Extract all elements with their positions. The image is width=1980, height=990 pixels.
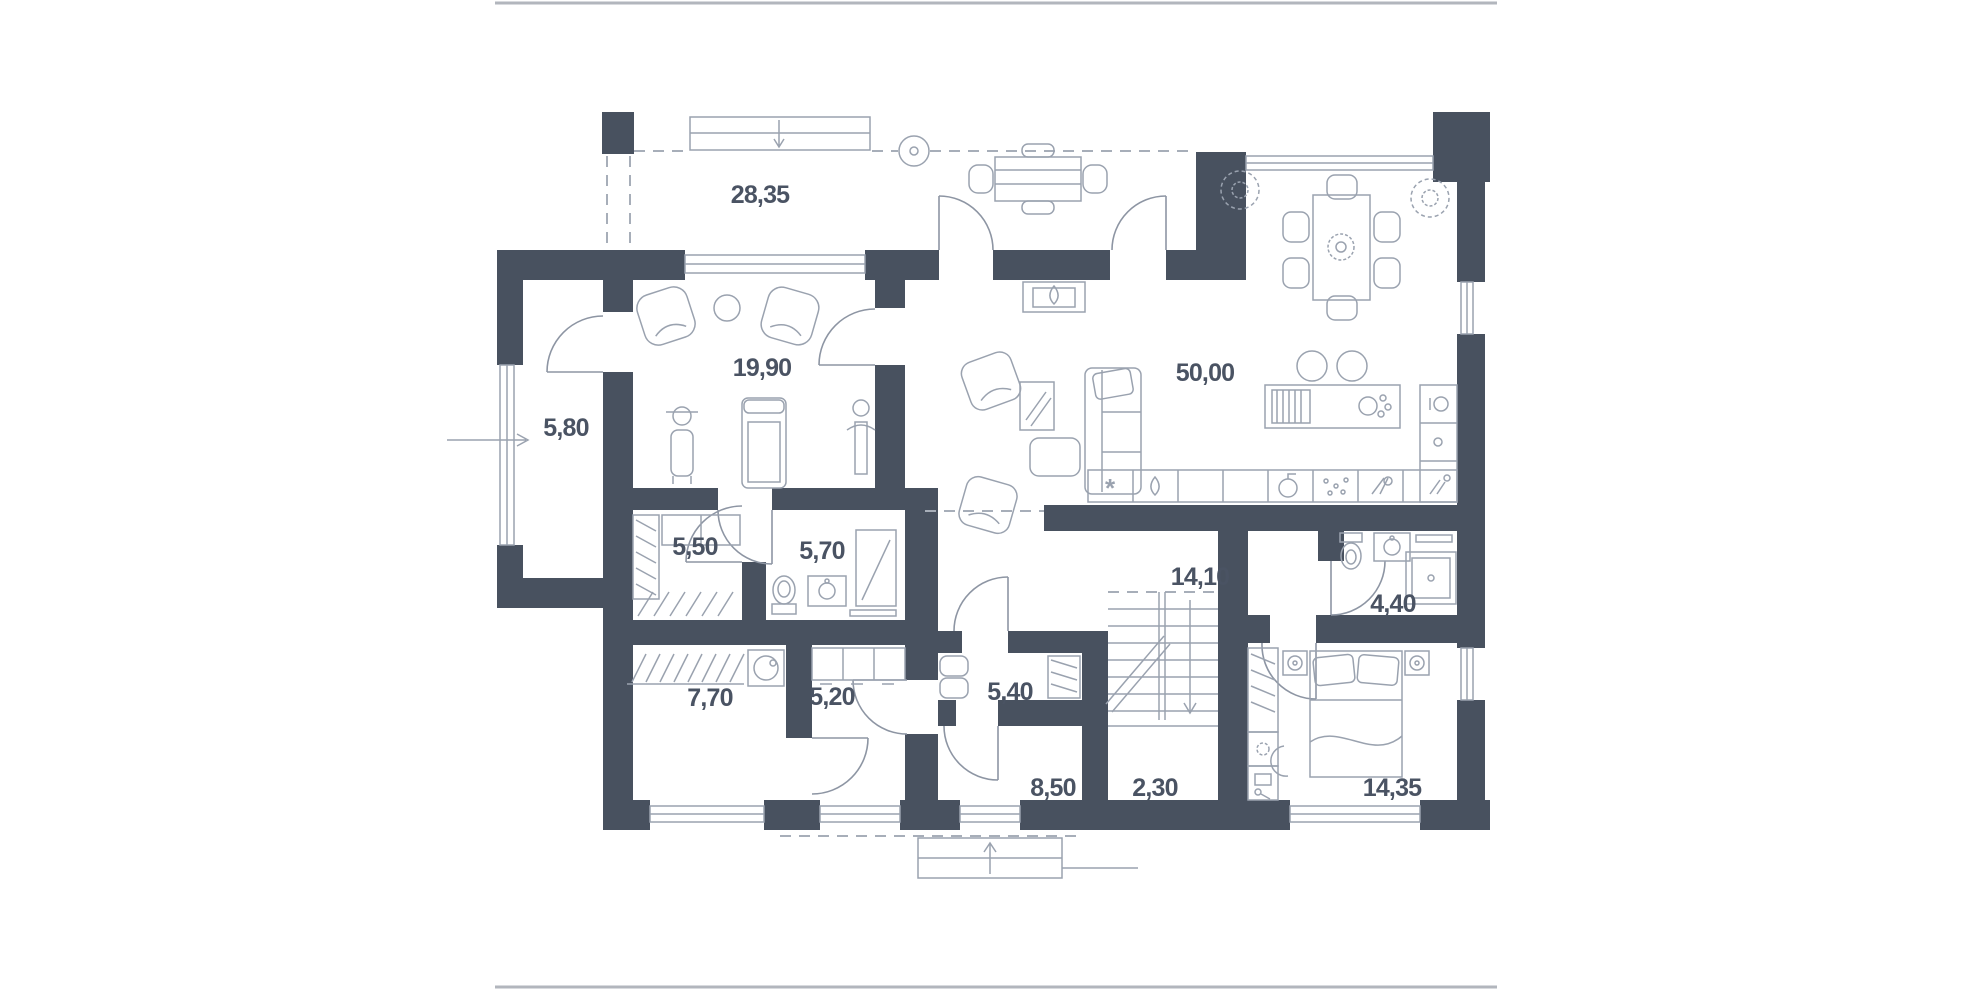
room-label-laundry: 5,20: [809, 683, 854, 711]
door-corridor-hall: [954, 577, 1008, 631]
stairs-direction-arrow: [1184, 600, 1196, 713]
room-label-entry: 8,50: [1030, 774, 1075, 802]
wall-segment: [865, 250, 939, 280]
wall-segment: [1457, 334, 1485, 648]
wall-segment: [1082, 800, 1248, 830]
entry-steps-icon: [918, 838, 1138, 878]
wall-segment: [1420, 800, 1490, 830]
window-porch-west: [500, 365, 514, 545]
washbasin-icon: [808, 576, 846, 606]
door-hall-entry: [944, 726, 998, 780]
room-label-dressing: 5,50: [672, 533, 717, 561]
entrance-door-threshold: [960, 806, 1020, 822]
wall-segment: [603, 620, 938, 645]
wall-segment: [742, 562, 766, 620]
terrace-west-dashed: [607, 156, 630, 250]
door-terrace-right: [1112, 196, 1166, 250]
coffee-table-icon: [1030, 438, 1080, 476]
wall-segment: [1248, 800, 1290, 830]
desk-chair-icon: [1271, 746, 1288, 776]
towel-rail-icon: [850, 610, 896, 616]
wall-segment: [772, 488, 938, 510]
hob-flame-icon: [1151, 477, 1159, 495]
room-label-terrace: 28,35: [731, 181, 790, 209]
wall-segment: [1433, 112, 1490, 182]
armchair-icon: [633, 283, 699, 349]
side-table-icon: [714, 295, 740, 321]
armchair-icon: [758, 284, 822, 348]
wall-segment: [764, 800, 820, 830]
dining-table-icon: [1283, 175, 1400, 320]
planter-bench-icon: [690, 117, 870, 150]
window-gym-north: [685, 255, 865, 273]
door-laundry-storage: [812, 738, 868, 794]
wardrobe-hatch-icon: [627, 654, 744, 684]
wall-segment: [497, 280, 523, 365]
wall-segment: [603, 800, 650, 830]
fireplace-icon: [1023, 282, 1085, 312]
treadmill-icon: [742, 398, 786, 488]
door-hall-laundry: [853, 680, 907, 734]
armchair-icon: [958, 349, 1024, 414]
outdoor-dining-table-icon: [969, 144, 1107, 214]
room-label-corridor: 14,10: [1171, 563, 1230, 591]
plate-glass-icon: [1430, 397, 1448, 411]
wall-segment: [993, 250, 1110, 280]
towel-rail-icon: [1416, 535, 1452, 542]
door-terrace-left: [939, 196, 993, 250]
porch-entry-arrow: [447, 434, 528, 446]
stair-break-line: [1106, 636, 1170, 712]
window-storage-south: [650, 806, 764, 822]
laundry-counter-icon: [812, 648, 905, 684]
wall-segment: [938, 700, 956, 726]
window-laundry-south: [820, 806, 900, 822]
room-label-hall: 5,40: [987, 678, 1032, 706]
armchair-icon: [956, 474, 1020, 536]
wall-segment: [1457, 182, 1485, 282]
staircase-icon: [1106, 592, 1218, 726]
wall-segment: [905, 510, 938, 680]
nightstand-icon: [1405, 651, 1429, 675]
freezer-icon: *: [1105, 473, 1116, 503]
hall-closet-icon: [1048, 656, 1080, 698]
wall-segment: [1044, 505, 1460, 531]
wall-segment: [1020, 800, 1082, 830]
wall-segment: [603, 280, 633, 312]
floor-plan-page: 28,35 19,90 5,80 50,00 5,50 5,70 14,10 4…: [0, 0, 1980, 990]
walls: [497, 112, 1490, 830]
small-sink-icon: [1434, 438, 1442, 446]
gym-machine-icon: [847, 400, 875, 474]
room-label-living: 50,00: [1176, 359, 1235, 387]
wall-segment: [603, 250, 685, 280]
dishwasher-icon: [1324, 478, 1348, 495]
kitchen-island-icon: [1265, 385, 1400, 428]
room-label-wc: 4,40: [1370, 590, 1415, 618]
exercise-bike-icon: [666, 407, 698, 484]
toilet-icon: [772, 576, 796, 614]
counter-sink-icon: [1279, 474, 1297, 497]
room-label-bedroom: 14,35: [1363, 774, 1422, 802]
bedroom-wardrobe-icon: [1248, 648, 1278, 800]
island-sink-icon: [1297, 351, 1327, 381]
window-bedroom-east: [1461, 648, 1473, 700]
wall-segment: [1166, 250, 1196, 280]
wall-segment: [875, 280, 905, 308]
room-label-stairs: 2,30: [1132, 774, 1177, 802]
wall-segment: [938, 631, 962, 653]
door-porch-gym: [547, 316, 603, 372]
wall-segment: [497, 250, 603, 280]
bed-icon: [1310, 651, 1402, 777]
wall-segment: [497, 578, 603, 608]
wall-segment: [900, 800, 960, 830]
wall-segment: [786, 645, 812, 738]
window-bedroom-south: [1290, 806, 1420, 822]
wall-segment: [602, 112, 634, 154]
plant-icon: [1411, 179, 1449, 217]
brush-icon: [1430, 475, 1450, 494]
wall-segment: [1316, 615, 1460, 643]
wall-segment: [633, 488, 718, 510]
room-label-porch: 5,80: [543, 414, 588, 442]
wall-segment: [1008, 631, 1082, 653]
nightstand-icon: [1283, 651, 1307, 675]
wall-mirror-icon: [1020, 382, 1054, 430]
room-label-storage: 7,70: [687, 684, 732, 712]
wall-segment: [603, 372, 633, 830]
wall-segment: [1248, 615, 1270, 643]
shower-cabinet-icon: [856, 530, 896, 606]
door-gym-bathroom: [718, 510, 772, 564]
window-living-east: [1461, 282, 1473, 334]
room-label-bathroom: 5,70: [799, 537, 844, 565]
washing-machine-icon: [748, 650, 784, 686]
island-sink-icon: [1337, 351, 1367, 381]
ceiling-lamp-icon: [899, 136, 929, 166]
furniture: [447, 117, 1457, 878]
room-label-gym: 19,90: [733, 354, 792, 382]
window-dining-north: [1246, 156, 1433, 170]
washbasin-icon: [1374, 533, 1410, 561]
clothes-rail-icon: [633, 515, 659, 599]
utensils-icon: [1372, 477, 1392, 494]
doormat-hatch-icon: [638, 592, 733, 616]
door-gym-living: [819, 309, 875, 365]
kitchen-counter-icon: [1088, 470, 1457, 502]
kitchen-column-icon: [1420, 385, 1457, 502]
floor-plan-drawing: 28,35 19,90 5,80 50,00 5,50 5,70 14,10 4…: [0, 0, 1980, 990]
shoe-cabinet-icon: [940, 656, 968, 698]
